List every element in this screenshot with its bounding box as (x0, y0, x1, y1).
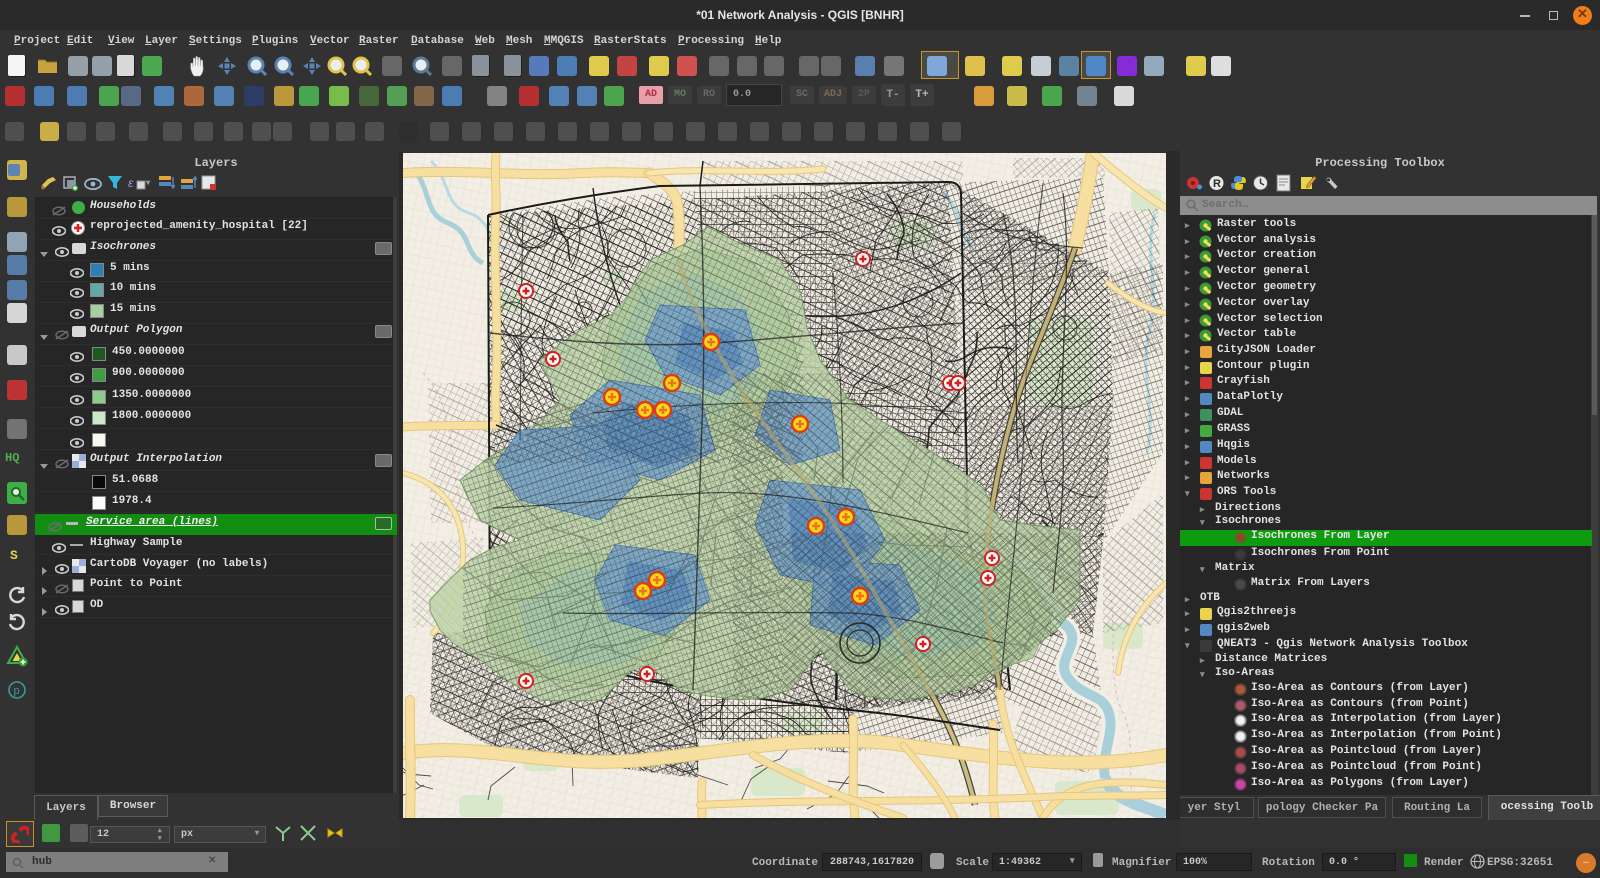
svg-text:ε: ε (128, 176, 134, 190)
svg-text:p: p (14, 685, 20, 697)
svg-text:R: R (1213, 178, 1221, 190)
